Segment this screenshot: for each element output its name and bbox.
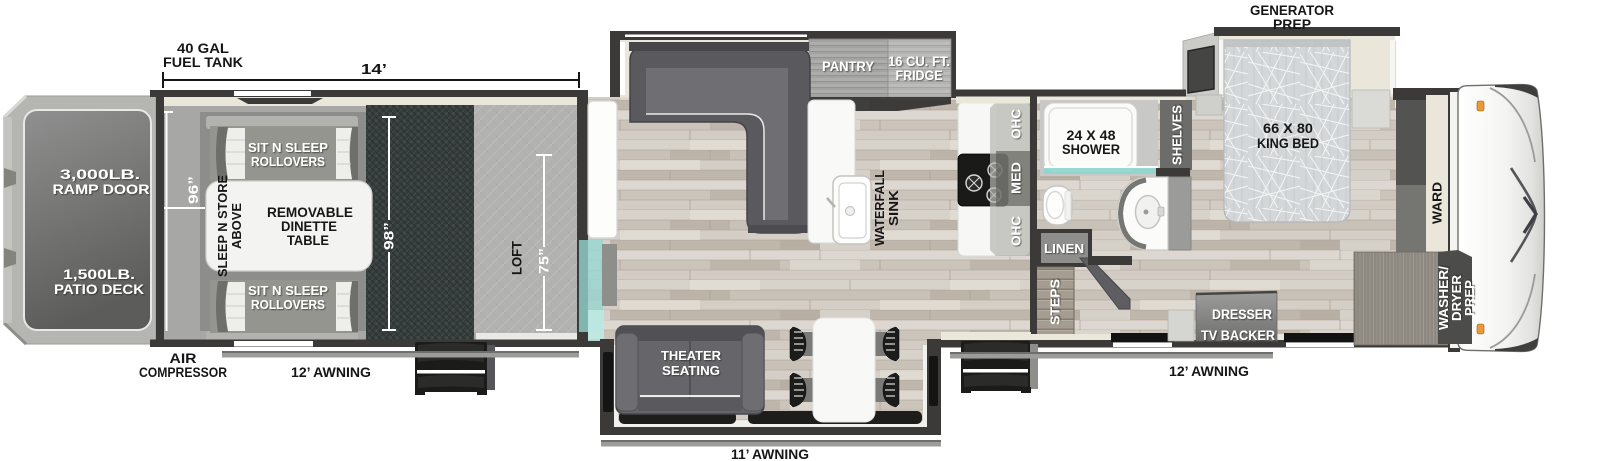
- svg-text:DRESSER: DRESSER: [1212, 307, 1272, 322]
- svg-text:40 GAL: 40 GAL: [177, 41, 229, 56]
- svg-text:PATIO DECK: PATIO DECK: [54, 281, 144, 297]
- svg-text:GENERATOR: GENERATOR: [1250, 3, 1334, 18]
- svg-text:12’ AWNING: 12’ AWNING: [291, 364, 371, 380]
- svg-text:ROLLOVERS: ROLLOVERS: [251, 154, 325, 169]
- svg-text:AIR: AIR: [170, 351, 197, 366]
- svg-text:WASHER/: WASHER/: [1437, 265, 1451, 330]
- svg-text:SIT N SLEEP: SIT N SLEEP: [248, 283, 328, 298]
- svg-text:SHOWER: SHOWER: [1062, 142, 1120, 157]
- svg-text:12’ AWNING: 12’ AWNING: [1169, 363, 1249, 379]
- svg-text:RAMP DOOR: RAMP DOOR: [53, 181, 150, 197]
- svg-text:TV BACKER: TV BACKER: [1201, 328, 1275, 343]
- svg-text:FRIDGE: FRIDGE: [896, 68, 943, 83]
- svg-text:SLEEP N STORE: SLEEP N STORE: [216, 175, 230, 277]
- svg-text:98”: 98”: [382, 222, 397, 250]
- svg-text:REMOVABLE: REMOVABLE: [267, 205, 353, 220]
- svg-text:75”: 75”: [537, 248, 552, 274]
- svg-text:LINEN: LINEN: [1044, 241, 1084, 256]
- svg-text:14’: 14’: [361, 61, 387, 78]
- svg-text:OHC: OHC: [1010, 109, 1024, 139]
- svg-text:WATERFALL: WATERFALL: [872, 170, 887, 246]
- svg-text:TABLE: TABLE: [287, 233, 329, 248]
- svg-text:WARD: WARD: [1430, 182, 1445, 224]
- svg-text:FUEL TANK: FUEL TANK: [163, 55, 243, 70]
- svg-text:3,000LB.: 3,000LB.: [60, 166, 140, 182]
- svg-text:SHELVES: SHELVES: [1171, 105, 1185, 165]
- svg-text:COMPRESSOR: COMPRESSOR: [139, 365, 227, 380]
- svg-text:KING BED: KING BED: [1257, 136, 1319, 151]
- svg-text:DRYER: DRYER: [1450, 275, 1464, 321]
- svg-text:STEPS: STEPS: [1049, 279, 1063, 325]
- svg-text:1,500LB.: 1,500LB.: [63, 266, 135, 282]
- svg-text:SIT N SLEEP: SIT N SLEEP: [248, 140, 328, 155]
- svg-text:LOFT: LOFT: [510, 240, 525, 275]
- svg-text:MED: MED: [1010, 162, 1024, 194]
- svg-text:THEATER: THEATER: [661, 348, 722, 363]
- svg-text:DINETTE: DINETTE: [281, 219, 337, 234]
- svg-text:16 CU. FT.: 16 CU. FT.: [888, 54, 950, 69]
- svg-text:96”: 96”: [186, 176, 201, 204]
- svg-text:ABOVE: ABOVE: [230, 203, 244, 249]
- svg-text:66 X 80: 66 X 80: [1263, 121, 1313, 136]
- svg-text:PANTRY: PANTRY: [822, 58, 875, 74]
- svg-text:SEATING: SEATING: [662, 363, 720, 378]
- svg-text:SINK: SINK: [886, 189, 901, 226]
- svg-text:ROLLOVERS: ROLLOVERS: [251, 297, 325, 312]
- svg-text:OHC: OHC: [1010, 216, 1024, 246]
- svg-text:11’ AWNING: 11’ AWNING: [731, 446, 809, 461]
- svg-text:PREP: PREP: [1463, 280, 1477, 316]
- svg-text:PREP: PREP: [1273, 17, 1311, 32]
- svg-text:24 X 48: 24 X 48: [1067, 128, 1117, 143]
